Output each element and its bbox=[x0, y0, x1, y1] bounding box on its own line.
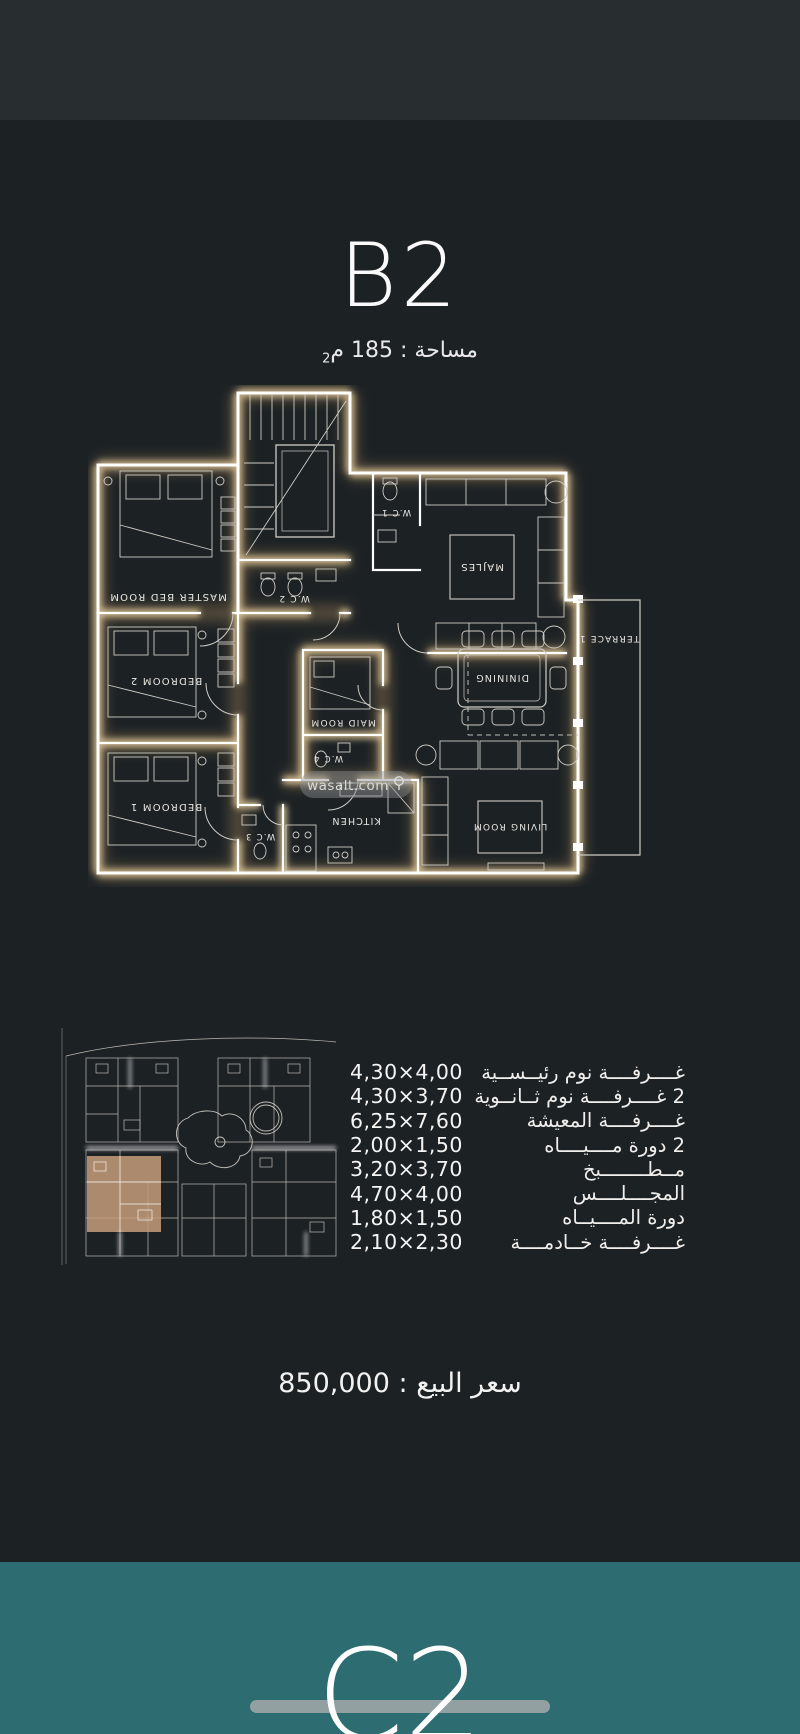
dimension-label: غــــرفــــة خــادمــــة bbox=[462, 1231, 685, 1254]
label-living-room: LIVING ROOM bbox=[473, 821, 547, 831]
floorplan-drawing: MASTER BED ROOM W.C 2 BEDROOM 2 BEDROOM … bbox=[88, 385, 650, 887]
staircase bbox=[244, 395, 346, 555]
dimension-value: 4,30×4,00 bbox=[350, 1060, 462, 1084]
watermark-text: wasalt.com bbox=[307, 778, 389, 794]
dimension-row: 2,10×2,30غــــرفــــة خــادمــــة bbox=[350, 1230, 685, 1254]
dimension-row: 2,00×1,502 دورة مــــيــــاه bbox=[350, 1133, 685, 1157]
label-terrace: TERRACE 1 bbox=[579, 633, 641, 643]
sale-price-value: 850,000 bbox=[278, 1368, 390, 1399]
dimension-label: دورة المــــيــاه bbox=[462, 1206, 685, 1229]
unit-card: B2 مساحة : 185 م2 bbox=[0, 120, 800, 1562]
watermark: wasalt.com bbox=[300, 771, 412, 798]
siteplan-drawing bbox=[60, 1022, 342, 1268]
dimension-label: 2 غــــرفــــة نوم ثــانــوية bbox=[462, 1085, 685, 1108]
page: B2 مساحة : 185 م2 bbox=[0, 0, 800, 1734]
label-master-bedroom: MASTER BED ROOM bbox=[109, 591, 227, 602]
label-kitchen: KITCHEN bbox=[331, 815, 381, 826]
dimension-row: 4,30×3,702 غــــرفــــة نوم ثــانــوية bbox=[350, 1084, 685, 1108]
dimension-label: مــطــــــــبخ bbox=[462, 1158, 685, 1181]
sale-price: سعر البيع : 850,000 bbox=[0, 1368, 800, 1399]
dimension-value: 2,10×2,30 bbox=[350, 1230, 462, 1254]
label-bedroom2: BEDROOM 2 bbox=[130, 675, 203, 686]
dimension-row: 6,25×7,60غــــرفــــة المعيشة bbox=[350, 1109, 685, 1133]
dimension-value: 4,30×3,70 bbox=[350, 1084, 462, 1108]
sale-price-colon: : bbox=[399, 1368, 408, 1399]
dimension-row: 4,30×4,00غــــرفــــة نوم رئيــســية bbox=[350, 1060, 685, 1084]
dimension-value: 2,00×1,50 bbox=[350, 1133, 462, 1157]
dimension-label: غــــرفــــة المعيشة bbox=[462, 1109, 685, 1132]
dimensions-list: 4,30×4,00غــــرفــــة نوم رئيــســية 4,3… bbox=[350, 1060, 685, 1254]
unit-area: مساحة : 185 م2 bbox=[0, 338, 800, 366]
dimension-row: 4,70×4,00المجــــلــــس bbox=[350, 1181, 685, 1205]
label-wc1: W.C 1 bbox=[381, 507, 411, 517]
dimension-label: غــــرفــــة نوم رئيــســية bbox=[462, 1061, 685, 1084]
dimension-label: المجــــلــــس bbox=[462, 1182, 685, 1205]
label-maid-room: MAID ROOM bbox=[310, 717, 375, 727]
dimension-value: 1,80×1,50 bbox=[350, 1206, 462, 1230]
dimension-label: 2 دورة مــــيــــاه bbox=[462, 1134, 685, 1157]
unit-title: B2 bbox=[0, 232, 800, 320]
dimension-row: 1,80×1,50دورة المــــيــاه bbox=[350, 1206, 685, 1230]
label-wc3: W.C 3 bbox=[245, 831, 275, 841]
dimension-value: 3,20×3,70 bbox=[350, 1157, 462, 1181]
sale-price-label: سعر البيع bbox=[416, 1368, 522, 1399]
highlighted-unit bbox=[87, 1156, 161, 1232]
dimension-value: 4,70×4,00 bbox=[350, 1182, 462, 1206]
unit-area-text: مساحة : 185 م bbox=[330, 338, 478, 363]
dashed-boundary bbox=[468, 653, 578, 735]
dimension-row: 3,20×3,70مــطــــــــبخ bbox=[350, 1157, 685, 1181]
label-dining: DININING bbox=[475, 672, 529, 683]
label-wc2: W.C 2 bbox=[278, 593, 310, 603]
label-wc4: W.C 4 bbox=[313, 753, 343, 763]
next-unit-section: C2 bbox=[0, 1562, 800, 1734]
label-majles: MAJLES bbox=[460, 561, 504, 572]
dimension-value: 6,25×7,60 bbox=[350, 1109, 462, 1133]
label-bedroom1: BEDROOM 1 bbox=[130, 801, 203, 812]
next-unit-title: C2 bbox=[0, 1633, 800, 1734]
